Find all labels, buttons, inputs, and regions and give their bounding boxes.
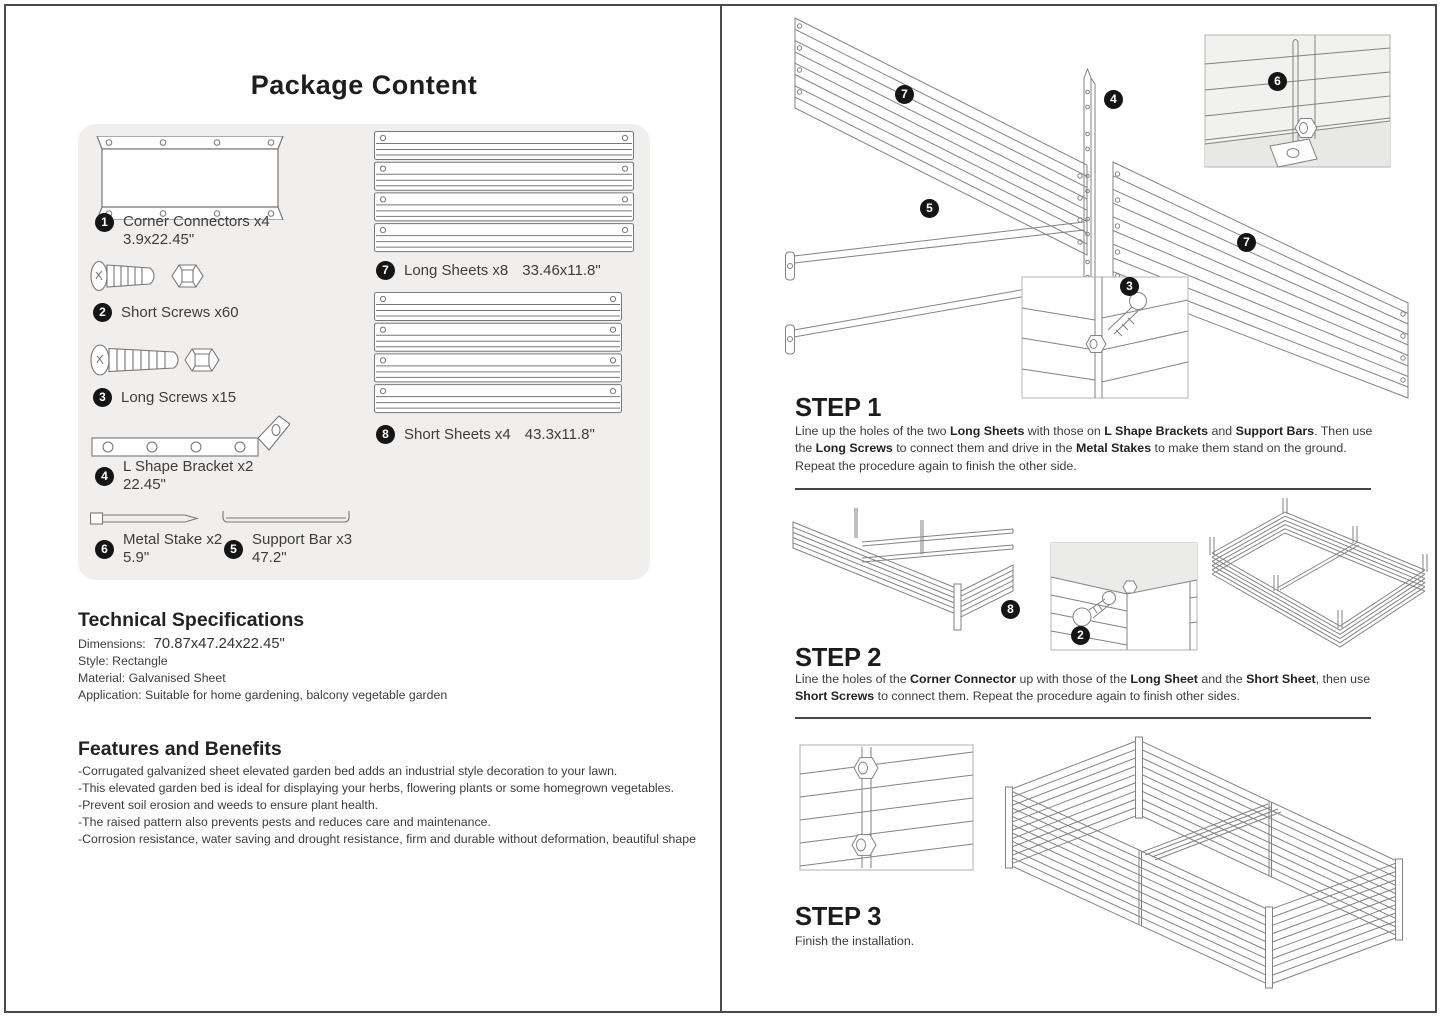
part-short-screws: 2 Short Screws x60: [93, 303, 239, 322]
part-size: 33.46x11.8": [522, 262, 600, 279]
callout-short-screw: 2: [1071, 626, 1090, 645]
part-name: Long Sheets x8: [404, 262, 508, 279]
part-name: Metal Stake x2: [123, 531, 222, 549]
feature-item: -This elevated garden bed is ideal for d…: [78, 781, 674, 795]
part-l-bracket: 4 L Shape Bracket x2 22.45": [95, 458, 253, 494]
part-size: 47.2": [252, 549, 352, 567]
part-name: Short Sheets x4: [404, 426, 511, 443]
spec-style: Style: Rectangle: [78, 654, 168, 668]
part-metal-stake: 6 Metal Stake x2 5.9": [95, 531, 222, 567]
part-size: 5.9": [123, 549, 222, 567]
callout-long-screw: 3: [1120, 277, 1139, 296]
l-bracket-icon: [90, 410, 290, 462]
spec-dimensions: Dimensions:70.87x47.24x22.45": [78, 636, 285, 652]
step2-title: STEP 2: [795, 644, 881, 673]
callout-support-bar: 5: [920, 199, 939, 218]
part-number-badge: 3: [93, 388, 112, 407]
part-corner-connectors: 1 Corner Connectors x4 3.9x22.45": [95, 213, 270, 249]
part-size: 3.9x22.45": [123, 231, 270, 249]
callout-long-sheet: 7: [895, 85, 914, 104]
part-name: Short Screws x60: [121, 304, 239, 321]
part-number-badge: 1: [95, 213, 114, 232]
step3-text: Finish the installation.: [795, 933, 1195, 950]
step1-title: STEP 1: [795, 394, 881, 423]
part-number-badge: 5: [224, 540, 243, 559]
metal-stake-icon: [90, 511, 200, 526]
part-long-screws: 3 Long Screws x15: [93, 388, 236, 407]
feature-item: -Corrugated galvanized sheet elevated ga…: [78, 764, 617, 778]
feature-item: -Prevent soil erosion and weeds to ensur…: [78, 798, 378, 812]
panel-divider: [720, 4, 722, 1013]
corner-connector-icon: [95, 136, 285, 220]
part-number-badge: 8: [376, 425, 395, 444]
feature-item: -The raised pattern also prevents pests …: [78, 815, 491, 829]
feature-item: -Corrosion resistance, water saving and …: [78, 832, 696, 846]
step2-diagram: [780, 498, 1440, 652]
tech-specs-heading: Technical Specifications: [78, 609, 304, 632]
step2-text: Line the holes of the Corner Connector u…: [795, 671, 1395, 706]
part-name: Long Screws x15: [121, 389, 236, 406]
long-sheets-icon: [374, 131, 634, 255]
step1-assembly-diagram: [725, 6, 1440, 400]
part-size: 43.3x11.8": [525, 426, 595, 443]
short-sheets-icon: [374, 292, 622, 416]
instruction-sheet: Package Content 1 Corner Connectors x4 3…: [0, 0, 1445, 1026]
long-screw-icon: [88, 342, 233, 378]
part-number-badge: 7: [376, 261, 395, 280]
short-screw-icon: [88, 258, 228, 294]
spec-material: Material: Galvanised Sheet: [78, 671, 226, 685]
step-divider: [795, 717, 1371, 719]
part-support-bar: 5 Support Bar x3 47.2": [224, 531, 352, 567]
step-divider: [795, 488, 1371, 490]
spec-application: Application: Suitable for home gardening…: [78, 688, 447, 702]
page-title: Package Content: [78, 70, 650, 101]
callout-l-bracket: 4: [1104, 90, 1123, 109]
callout-short-sheet: 8: [1001, 600, 1020, 619]
part-name: L Shape Bracket x2: [123, 458, 253, 476]
step3-title: STEP 3: [795, 903, 881, 932]
part-size: 22.45": [123, 476, 253, 494]
part-short-sheets: 8 Short Sheets x4 43.3x11.8": [376, 425, 595, 444]
part-name: Support Bar x3: [252, 531, 352, 549]
step1-text: Line up the holes of the two Long Sheets…: [795, 423, 1383, 475]
part-number-badge: 4: [95, 467, 114, 486]
callout-long-sheet-right: 7: [1237, 233, 1256, 252]
part-name: Corner Connectors x4: [123, 213, 270, 231]
part-number-badge: 2: [93, 303, 112, 322]
spec-dimensions-label: Dimensions:: [78, 637, 146, 651]
part-number-badge: 6: [95, 540, 114, 559]
step3-diagram: [790, 728, 1440, 1016]
callout-metal-stake: 6: [1268, 72, 1287, 91]
part-long-sheets: 7 Long Sheets x8 33.46x11.8": [376, 261, 601, 280]
features-heading: Features and Benefits: [78, 738, 282, 761]
support-bar-icon: [222, 509, 350, 526]
spec-dimensions-value: 70.87x47.24x22.45": [154, 636, 285, 652]
